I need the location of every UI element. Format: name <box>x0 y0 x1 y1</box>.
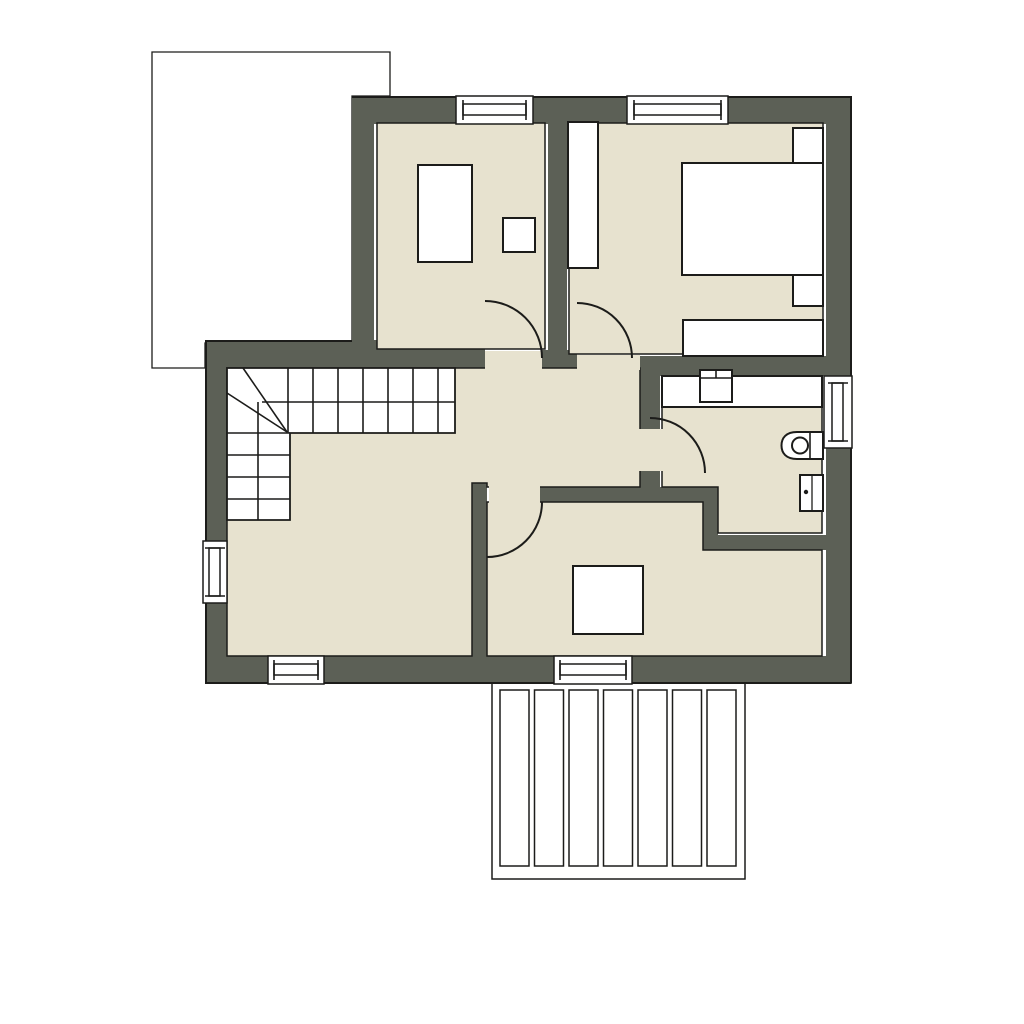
window-lower-room-south <box>554 656 632 684</box>
square-table <box>573 566 643 634</box>
window-bedroom-north <box>627 96 728 124</box>
toilet-bowl <box>792 438 808 454</box>
wall-study-west <box>352 96 374 368</box>
deck-plank <box>500 690 529 866</box>
wardrobe <box>568 122 598 268</box>
window-bathroom-east <box>824 376 852 448</box>
double-bed <box>682 163 823 275</box>
lower-room-door-opening <box>489 486 540 504</box>
deck-plank <box>569 690 598 866</box>
deck-plank <box>638 690 667 866</box>
nightstand-top <box>793 128 823 163</box>
desk <box>418 165 472 262</box>
bedroom-door-opening <box>577 355 640 370</box>
wall-bath-south <box>718 535 826 550</box>
floor-plan-canvas <box>0 0 1024 1024</box>
plank-deck <box>492 683 745 879</box>
chair <box>503 218 535 252</box>
wall-bath-west-stub <box>703 487 718 550</box>
sink <box>700 370 732 402</box>
radiator <box>800 475 823 511</box>
bathroom-door-opening <box>638 429 666 471</box>
dresser <box>683 320 823 356</box>
wall-study-bedroom-divider <box>548 120 567 368</box>
wall-hall-south <box>540 487 718 502</box>
deck-plank <box>604 690 633 866</box>
deck-plank <box>673 690 702 866</box>
window-glazing <box>274 664 318 675</box>
vanity-counter <box>662 376 822 407</box>
study-door-opening <box>485 351 542 370</box>
deck-plank <box>535 690 564 866</box>
window-glazing <box>832 383 843 441</box>
window-study-north <box>456 96 533 124</box>
window-glazing <box>634 104 721 115</box>
deck-plank <box>707 690 736 866</box>
window-glazing <box>463 104 526 115</box>
window-living-west <box>203 541 227 603</box>
toilet <box>782 432 824 459</box>
floor-plan-drawing <box>0 0 1024 1024</box>
radiator-valve <box>804 490 808 494</box>
nightstand-bottom <box>793 275 823 306</box>
wall-north <box>352 96 852 124</box>
window-living-south <box>268 656 324 684</box>
window-glazing <box>209 548 220 596</box>
wall-room-divider <box>472 483 487 656</box>
window-glazing <box>560 664 626 675</box>
wall-west <box>205 340 227 684</box>
